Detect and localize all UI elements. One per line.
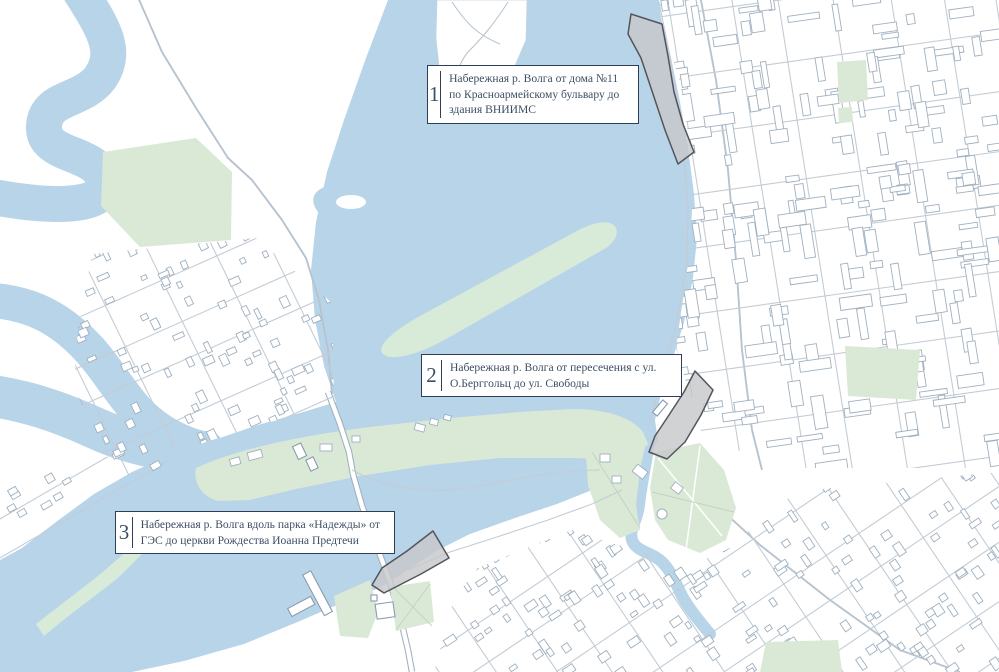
building — [749, 12, 765, 33]
building — [849, 399, 872, 413]
building — [898, 164, 911, 175]
building — [786, 175, 800, 183]
green-patch-ne-2 — [838, 107, 853, 123]
building — [673, 0, 684, 7]
building — [932, 80, 946, 96]
building — [740, 60, 753, 73]
building — [879, 175, 892, 189]
building — [962, 172, 976, 186]
building — [925, 204, 939, 213]
church-tower — [371, 595, 377, 601]
building — [964, 136, 978, 145]
green-patch-ne-1 — [837, 60, 868, 103]
map-canvas: 1 Набережная р. Волга от дома №11 по Кра… — [0, 0, 999, 672]
green-patch-east — [845, 346, 920, 400]
annotation-text-2: Набережная р. Волга от пересечения с ул.… — [442, 355, 681, 396]
park-building — [612, 476, 621, 483]
annotation-text-1: Набережная р. Волга от дома №11 по Красн… — [441, 66, 638, 123]
building — [794, 184, 805, 199]
building — [982, 115, 998, 126]
green-patch-south — [760, 640, 842, 672]
building — [954, 290, 964, 302]
park-building — [600, 454, 610, 462]
island-building — [320, 444, 332, 451]
building — [756, 88, 770, 109]
building — [897, 91, 911, 111]
annotation-number-2: 2 — [422, 355, 441, 396]
building — [858, 200, 869, 208]
building — [661, 0, 669, 11]
building — [742, 416, 758, 426]
building — [724, 155, 732, 166]
annotation-box-2: 2 Набережная р. Волга от пересечения с у… — [421, 354, 682, 397]
building — [680, 74, 690, 88]
church-building — [375, 602, 395, 619]
building — [871, 208, 886, 221]
annotation-box-3: 3 Набережная р. Волга вдоль парка «Надеж… — [115, 511, 395, 554]
annotation-box-1: 1 Набережная р. Волга от дома №11 по Кра… — [427, 65, 639, 124]
building — [987, 143, 999, 151]
building — [888, 109, 896, 121]
building — [906, 14, 915, 25]
building — [703, 19, 717, 32]
building — [741, 21, 752, 36]
building — [769, 128, 788, 143]
island-building — [352, 436, 360, 442]
park-fountain — [657, 509, 667, 519]
building — [870, 260, 883, 268]
building — [705, 285, 718, 300]
building — [840, 135, 854, 155]
building — [723, 203, 734, 215]
building — [957, 149, 969, 157]
annotation-number-1: 1 — [428, 66, 440, 123]
annotation-number-3: 3 — [116, 512, 132, 553]
lake-island — [336, 195, 366, 209]
annotation-text-3: Набережная р. Волга вдоль парка «Надежды… — [133, 512, 394, 553]
building — [932, 128, 943, 144]
building — [722, 229, 735, 249]
